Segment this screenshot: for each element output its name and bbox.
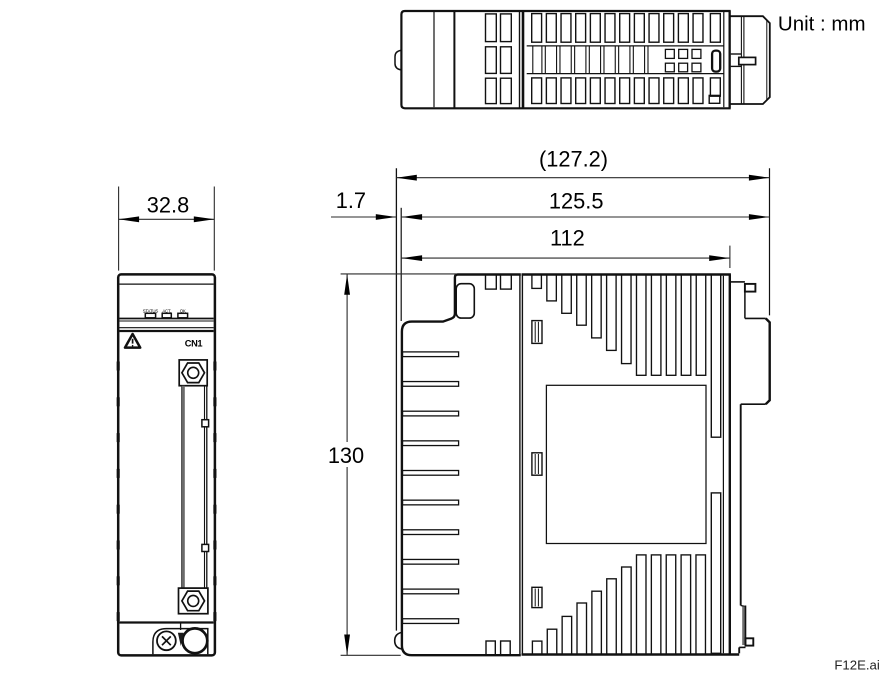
svg-text:125.5: 125.5	[549, 188, 604, 213]
svg-text:112: 112	[550, 226, 585, 251]
svg-text:F12E.ai: F12E.ai	[834, 657, 880, 672]
svg-text:CN1: CN1	[185, 339, 203, 349]
svg-text:Unit : mm: Unit : mm	[778, 12, 866, 35]
svg-text:1.7: 1.7	[336, 188, 366, 213]
svg-text:(127.2): (127.2)	[539, 147, 608, 172]
svg-text:32.8: 32.8	[147, 193, 189, 218]
svg-text:130: 130	[328, 443, 364, 468]
